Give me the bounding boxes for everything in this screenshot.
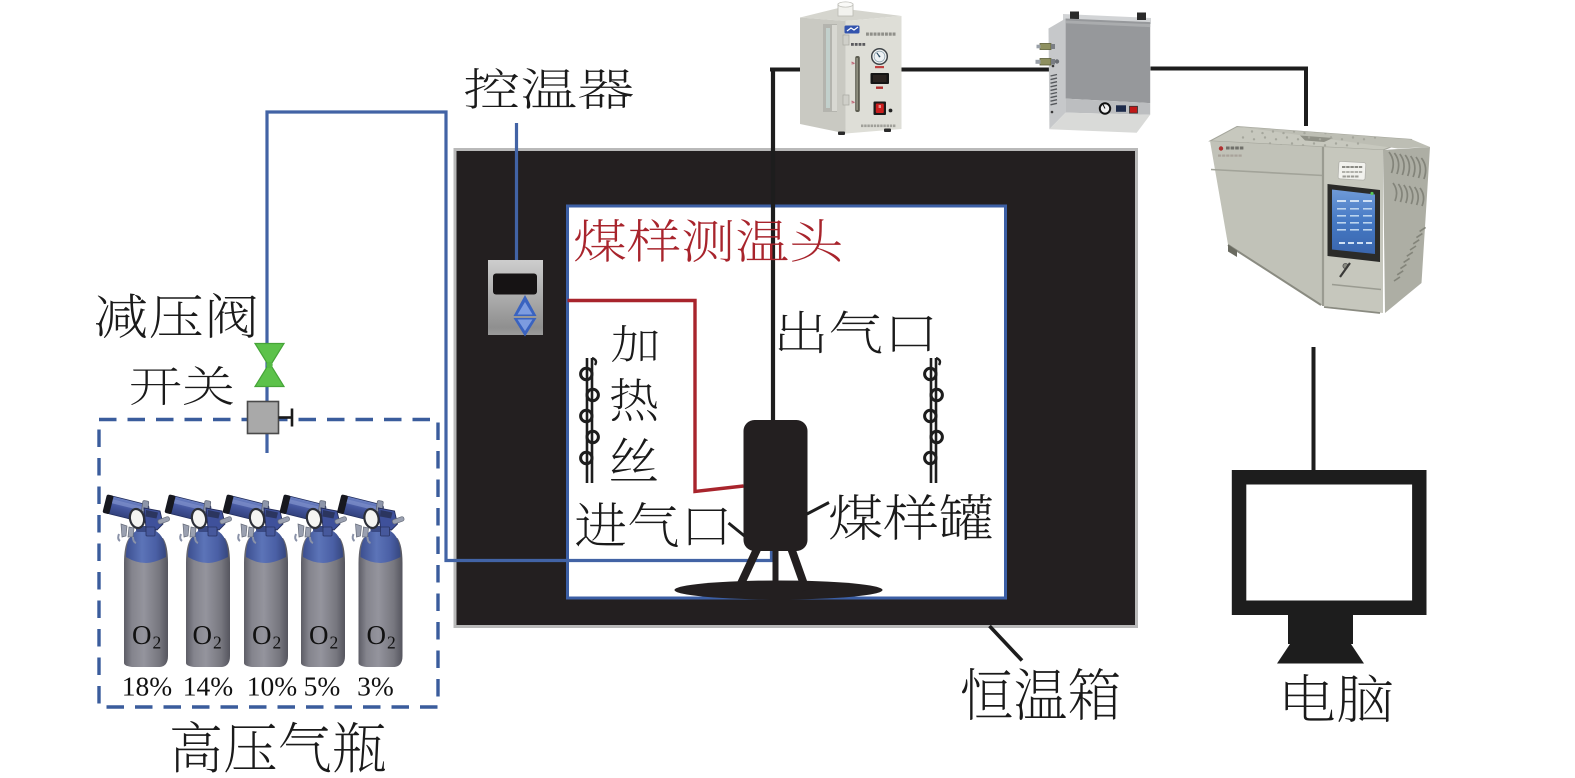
svg-text:3%: 3% bbox=[357, 671, 394, 702]
svg-text:5%: 5% bbox=[304, 671, 341, 702]
svg-text:10%: 10% bbox=[247, 671, 297, 702]
svg-text:18%: 18% bbox=[122, 671, 172, 702]
svg-text:14%: 14% bbox=[183, 671, 233, 702]
